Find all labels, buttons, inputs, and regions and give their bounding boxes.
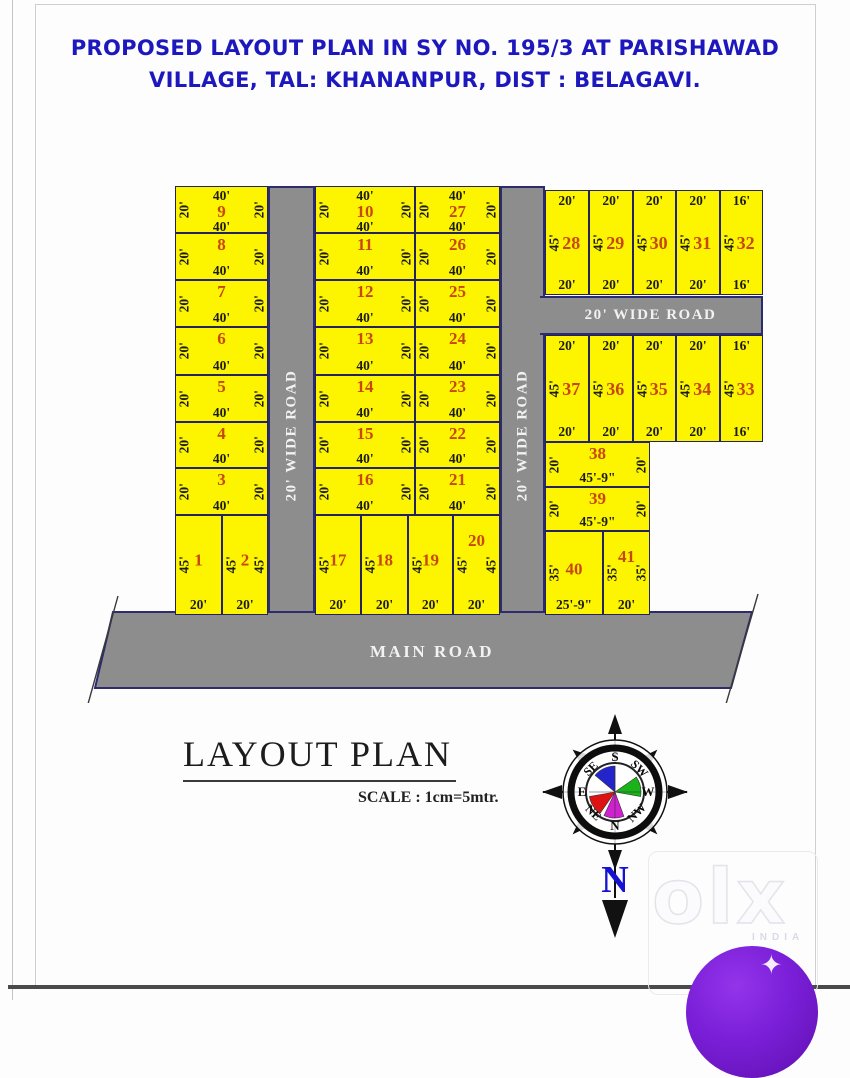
plot-dim-right: 20' xyxy=(252,336,266,366)
plot-10: 40'1040'20'20' xyxy=(315,186,415,233)
plot-number: 14 xyxy=(357,378,374,395)
plot-grid: 40'940'20'20'840'20'20'740'20'20'640'20'… xyxy=(0,0,850,1000)
plot-dim-left: 20' xyxy=(547,494,561,524)
plot-15: 1540'20'20' xyxy=(315,422,415,468)
plot-dim-left: 20' xyxy=(317,476,331,506)
plot-dim-bottom: 20' xyxy=(634,278,675,292)
plot-2: 220'45'45' xyxy=(222,515,268,615)
sparkle-icon: ✦ xyxy=(760,952,783,979)
plot-dim-left: 20' xyxy=(417,336,431,366)
plot-number: 32 xyxy=(737,234,755,252)
plot-number: 17 xyxy=(330,552,347,569)
plot-dim-left: 45' xyxy=(363,550,377,580)
plot-dim-right: 20' xyxy=(634,449,648,479)
plot-dim-bottom: 20' xyxy=(316,598,360,612)
plot-dim-bottom: 20' xyxy=(454,598,499,612)
plot-dim-left: 45' xyxy=(678,373,692,403)
plot-dim-left: 20' xyxy=(177,476,191,506)
plot-dim-bottom: 40' xyxy=(356,406,373,420)
plot-dim-bottom: 20' xyxy=(409,598,452,612)
plot-dim-top: 20' xyxy=(634,339,675,353)
plot-number: 18 xyxy=(376,552,393,569)
plot-dim-right: 20' xyxy=(399,241,413,271)
plot-number: 10 xyxy=(357,203,374,220)
plot-number: 11 xyxy=(357,236,373,253)
plot-dim-left: 20' xyxy=(317,383,331,413)
plot-number: 40 xyxy=(566,560,583,577)
plot-dim-top: 40' xyxy=(356,189,373,203)
plot-dim-bottom: 40' xyxy=(213,406,230,420)
compass-arrow-right xyxy=(668,785,688,799)
compass-label-s: S xyxy=(611,749,618,764)
plot-dim-top: 40' xyxy=(213,189,230,203)
plot-dim-left: 35' xyxy=(605,558,619,588)
plot-dim-bottom: 40' xyxy=(449,406,466,420)
layout-plan-page: PROPOSED LAYOUT PLAN IN SY NO. 195/3 AT … xyxy=(0,0,850,1000)
plot-dim-bottom: 20' xyxy=(677,425,719,439)
plot-dim-left: 45' xyxy=(722,227,736,257)
plot-dim-bottom: 40' xyxy=(356,499,373,513)
plot-dim-left: 35' xyxy=(547,558,561,588)
plot-dim-right: 20' xyxy=(484,383,498,413)
plot-dim-left: 20' xyxy=(177,383,191,413)
compass-arrow-up xyxy=(608,714,622,734)
plot-24: 2440'20'20' xyxy=(415,327,500,375)
plot-dim-left: 45' xyxy=(410,550,424,580)
plot-dim-bottom: 40' xyxy=(356,359,373,373)
plot-number: 9 xyxy=(217,203,226,220)
plot-18: 1820'45' xyxy=(361,515,408,615)
layout-plan-heading-text: LAYOUT PLAN xyxy=(183,733,456,782)
plot-dim-bottom: 20' xyxy=(677,278,719,292)
plot-dim-bottom: 20' xyxy=(546,425,588,439)
plot-dim-right: 20' xyxy=(484,288,498,318)
plot-dim-bottom: 40' xyxy=(356,452,373,466)
plot-dim-top: 20' xyxy=(677,339,719,353)
plot-22: 2240'20'20' xyxy=(415,422,500,468)
plot-dim-left: 20' xyxy=(317,241,331,271)
plot-dim-bottom: 40' xyxy=(356,220,373,234)
plot-dim-top: 40' xyxy=(449,189,466,203)
plot-number: 1 xyxy=(194,552,203,569)
plot-30: 20'3020'45' xyxy=(633,190,676,295)
plot-number: 28 xyxy=(562,234,580,252)
plot-32: 16'3216'45' xyxy=(720,190,763,295)
plot-12: 1240'20'20' xyxy=(315,280,415,327)
plot-dim-bottom: 20' xyxy=(546,278,588,292)
plot-dim-right: 20' xyxy=(252,194,266,224)
plot-number: 22 xyxy=(449,425,466,442)
plot-number: 35 xyxy=(650,380,668,398)
plot-dim-right: 20' xyxy=(634,494,648,524)
plot-39: 3945'-9"20'20' xyxy=(545,487,650,531)
plot-dim-left: 45' xyxy=(547,373,561,403)
plot-dim-left: 20' xyxy=(417,194,431,224)
plot-dim-left: 20' xyxy=(317,194,331,224)
plot-37: 20'3720'45' xyxy=(545,335,589,442)
plot-dim-bottom: 40' xyxy=(449,359,466,373)
plot-13: 1340'20'20' xyxy=(315,327,415,375)
plot-dim-left: 45' xyxy=(635,373,649,403)
plot-dim-left: 20' xyxy=(417,288,431,318)
plot-dim-left: 45' xyxy=(547,227,561,257)
compass-label-n: N xyxy=(610,818,620,833)
plot-dim-right: 20' xyxy=(484,194,498,224)
plot-dim-left: 45' xyxy=(591,227,605,257)
plot-dim-left: 20' xyxy=(177,430,191,460)
plot-dim-left: 20' xyxy=(177,336,191,366)
plot-dim-right: 20' xyxy=(252,241,266,271)
plot-dim-bottom: 40' xyxy=(449,452,466,466)
plot-dim-bottom: 45'-9" xyxy=(580,515,616,529)
plot-35: 20'3520'45' xyxy=(633,335,676,442)
plot-26: 2640'20'20' xyxy=(415,233,500,280)
plot-number: 31 xyxy=(693,234,711,252)
plot-number: 15 xyxy=(357,425,374,442)
plot-28: 20'2820'45' xyxy=(545,190,589,295)
plot-dim-bottom: 25'-9" xyxy=(546,598,602,612)
plot-dim-right: 20' xyxy=(399,383,413,413)
plot-number: 30 xyxy=(650,234,668,252)
plot-dim-left: 45' xyxy=(591,373,605,403)
plot-16: 1640'20'20' xyxy=(315,468,415,515)
plot-dim-bottom: 40' xyxy=(213,359,230,373)
plot-dim-bottom: 40' xyxy=(213,264,230,278)
plot-number: 20 xyxy=(468,532,485,549)
plot-dim-top: 20' xyxy=(546,339,588,353)
plot-21: 2140'20'20' xyxy=(415,468,500,515)
plot-dim-bottom: 40' xyxy=(449,499,466,513)
plot-dim-left: 45' xyxy=(722,373,736,403)
plot-dim-left: 45' xyxy=(177,550,191,580)
plot-dim-left: 20' xyxy=(317,288,331,318)
plot-number: 6 xyxy=(217,330,226,347)
plot-dim-right: 20' xyxy=(252,288,266,318)
plot-dim-bottom: 40' xyxy=(213,452,230,466)
plot-14: 1440'20'20' xyxy=(315,375,415,422)
plot-dim-left: 20' xyxy=(317,430,331,460)
plot-dim-right: 20' xyxy=(399,194,413,224)
plot-dim-right: 20' xyxy=(252,476,266,506)
plot-number: 38 xyxy=(589,445,606,462)
plot-1: 120'45' xyxy=(175,515,222,615)
plot-27: 40'2740'20'20' xyxy=(415,186,500,233)
olx-logo: olx xyxy=(652,852,788,941)
plot-8: 840'20'20' xyxy=(175,233,268,280)
plot-dim-right: 45' xyxy=(484,550,498,580)
plot-number: 23 xyxy=(449,378,466,395)
olx-india-label: INDIA xyxy=(752,932,804,943)
plot-number: 33 xyxy=(737,380,755,398)
plot-number: 25 xyxy=(449,283,466,300)
plot-number: 2 xyxy=(241,552,250,569)
plot-dim-bottom: 45'-9" xyxy=(580,471,616,485)
plot-dim-right: 20' xyxy=(484,241,498,271)
plot-dim-bottom: 40' xyxy=(213,311,230,325)
plot-41: 4120'35'35' xyxy=(603,531,650,615)
plot-number: 3 xyxy=(217,471,226,488)
plot-17: 1720'45' xyxy=(315,515,361,615)
plot-3: 340'20'20' xyxy=(175,468,268,515)
plot-dim-top: 20' xyxy=(677,194,719,208)
plot-dim-bottom: 40' xyxy=(213,220,230,234)
plot-number: 34 xyxy=(693,380,711,398)
plot-19: 1920'45' xyxy=(408,515,453,615)
plot-20: 2020'45'45' xyxy=(453,515,500,615)
plot-dim-right: 20' xyxy=(484,430,498,460)
plot-36: 20'3620'45' xyxy=(589,335,633,442)
plot-dim-top: 20' xyxy=(590,339,632,353)
olx-app-badge xyxy=(686,946,818,1078)
plot-number: 26 xyxy=(449,236,466,253)
plot-dim-left: 20' xyxy=(417,383,431,413)
plot-dim-bottom: 20' xyxy=(634,425,675,439)
plot-5: 540'20'20' xyxy=(175,375,268,422)
plot-dim-top: 16' xyxy=(721,194,762,208)
north-pointer-arrow xyxy=(602,900,628,938)
plot-dim-left: 45' xyxy=(224,550,238,580)
plot-number: 27 xyxy=(449,203,466,220)
plot-dim-right: 20' xyxy=(399,476,413,506)
plot-dim-bottom: 40' xyxy=(213,499,230,513)
plot-number: 37 xyxy=(562,380,580,398)
plot-dim-left: 20' xyxy=(177,194,191,224)
plot-dim-right: 20' xyxy=(484,476,498,506)
plot-number: 13 xyxy=(357,330,374,347)
plot-dim-left: 20' xyxy=(317,336,331,366)
plot-dim-right: 20' xyxy=(484,336,498,366)
plot-23: 2340'20'20' xyxy=(415,375,500,422)
plot-dim-left: 20' xyxy=(417,430,431,460)
plot-number: 12 xyxy=(357,283,374,300)
plot-number: 5 xyxy=(217,378,226,395)
plot-number: 16 xyxy=(357,471,374,488)
plot-9: 40'940'20'20' xyxy=(175,186,268,233)
plot-7: 740'20'20' xyxy=(175,280,268,327)
plot-dim-right: 35' xyxy=(634,558,648,588)
plot-dim-bottom: 40' xyxy=(356,311,373,325)
compass-arrow-left xyxy=(542,785,562,799)
plot-number: 39 xyxy=(589,490,606,507)
plot-dim-right: 20' xyxy=(252,383,266,413)
plot-number: 41 xyxy=(618,548,635,565)
plot-29: 20'2920'45' xyxy=(589,190,633,295)
plot-dim-bottom: 40' xyxy=(449,220,466,234)
plot-number: 19 xyxy=(422,552,439,569)
plot-dim-left: 20' xyxy=(177,288,191,318)
layout-plan-heading: LAYOUT PLAN xyxy=(183,733,456,782)
plot-dim-left: 20' xyxy=(177,241,191,271)
plot-34: 20'3420'45' xyxy=(676,335,720,442)
plot-number: 21 xyxy=(449,471,466,488)
plot-number: 24 xyxy=(449,330,466,347)
plot-dim-right: 20' xyxy=(399,336,413,366)
plot-dim-bottom: 40' xyxy=(449,311,466,325)
plot-dim-bottom: 16' xyxy=(721,425,762,439)
plot-4: 440'20'20' xyxy=(175,422,268,468)
plot-dim-left: 45' xyxy=(455,550,469,580)
plot-dim-bottom: 20' xyxy=(590,425,632,439)
plot-dim-bottom: 20' xyxy=(223,598,267,612)
plot-dim-right: 20' xyxy=(252,430,266,460)
plot-11: 1140'20'20' xyxy=(315,233,415,280)
plot-dim-left: 20' xyxy=(547,449,561,479)
plot-dim-left: 45' xyxy=(635,227,649,257)
plot-dim-bottom: 40' xyxy=(356,264,373,278)
plot-dim-bottom: 20' xyxy=(590,278,632,292)
plot-number: 36 xyxy=(606,380,624,398)
plot-dim-left: 45' xyxy=(678,227,692,257)
plot-dim-bottom: 16' xyxy=(721,278,762,292)
plot-dim-bottom: 20' xyxy=(176,598,221,612)
plot-33: 16'3316'45' xyxy=(720,335,763,442)
plot-dim-left: 20' xyxy=(417,241,431,271)
compass-label-w: W xyxy=(642,784,655,799)
plot-dim-right: 20' xyxy=(399,288,413,318)
scale-note: SCALE : 1cm=5mtr. xyxy=(358,789,499,807)
plot-dim-bottom: 40' xyxy=(449,264,466,278)
plot-dim-top: 16' xyxy=(721,339,762,353)
plot-number: 8 xyxy=(217,236,226,253)
compass-north-letter: N xyxy=(601,859,628,901)
plot-6: 640'20'20' xyxy=(175,327,268,375)
plot-31: 20'3120'45' xyxy=(676,190,720,295)
plot-25: 2540'20'20' xyxy=(415,280,500,327)
plot-dim-top: 20' xyxy=(546,194,588,208)
plot-number: 7 xyxy=(217,283,226,300)
plot-dim-top: 20' xyxy=(634,194,675,208)
plot-dim-bottom: 20' xyxy=(604,598,649,612)
compass-label-e: E xyxy=(578,784,587,799)
plot-38: 3845'-9"20'20' xyxy=(545,442,650,487)
plot-number: 29 xyxy=(606,234,624,252)
plot-dim-left: 20' xyxy=(417,476,431,506)
plot-dim-bottom: 20' xyxy=(362,598,407,612)
plot-40: 4025'-9"35' xyxy=(545,531,603,615)
plot-dim-top: 20' xyxy=(590,194,632,208)
plot-dim-right: 20' xyxy=(399,430,413,460)
plot-number: 4 xyxy=(217,425,226,442)
plot-dim-right: 45' xyxy=(252,550,266,580)
plot-dim-left: 45' xyxy=(317,550,331,580)
